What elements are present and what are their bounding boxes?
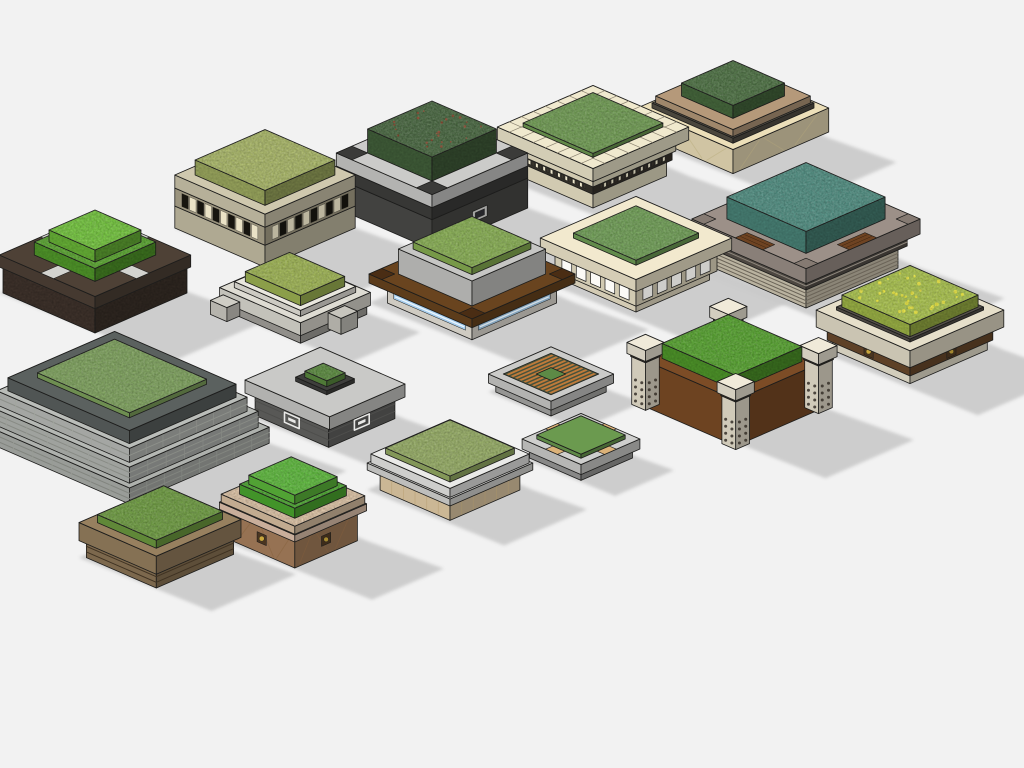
planter-collection-render (0, 0, 1024, 768)
render-viewport (0, 0, 1024, 768)
